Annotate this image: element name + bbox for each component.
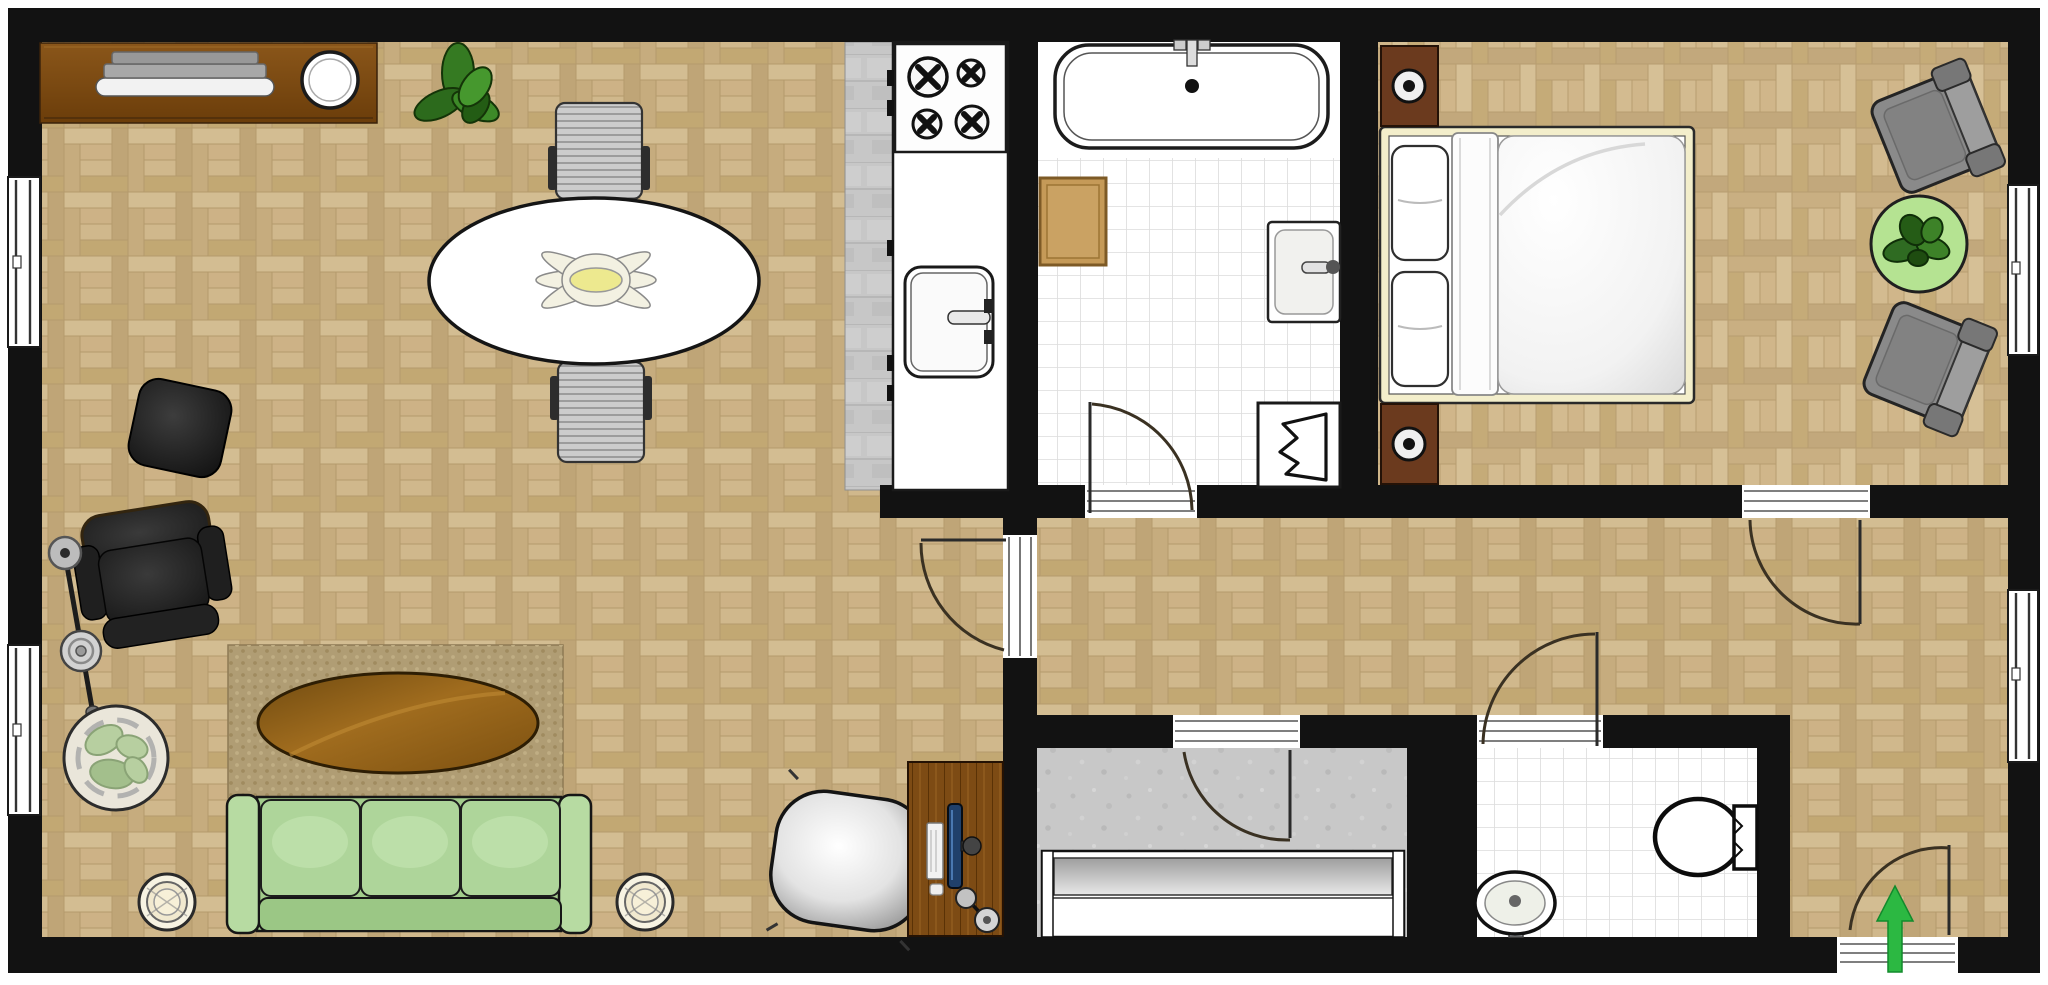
serving-tray <box>96 52 274 96</box>
kitchen <box>887 42 1008 490</box>
hallway-floor <box>1037 518 2008 715</box>
computer-desk <box>908 762 1003 936</box>
dining-chair-bottom <box>550 362 652 462</box>
laundry-basket <box>1258 403 1340 487</box>
bathroom-washbasin <box>1268 222 1340 322</box>
kitchen-sink <box>905 267 994 377</box>
double-bed <box>1380 127 1694 403</box>
round-plant-table <box>1871 196 1967 292</box>
window-right-bedroom <box>2008 185 2038 355</box>
nightstand-bottom <box>1381 404 1438 484</box>
decorative-bowl <box>302 52 358 108</box>
toilet <box>1655 799 1757 875</box>
window-right-hallway <box>2008 590 2038 762</box>
bath-mat <box>1040 178 1106 265</box>
window-left-upper <box>8 177 40 347</box>
table-centerpiece <box>536 244 656 316</box>
kitchen-strip-floor <box>845 42 893 490</box>
duvet <box>1498 136 1685 394</box>
oval-coffee-table <box>258 673 538 773</box>
nightstand-top <box>1381 46 1438 126</box>
round-side-table-left <box>139 874 195 930</box>
three-seat-sofa <box>227 795 591 933</box>
wardrobe <box>1042 851 1404 937</box>
round-side-table-right <box>617 874 673 930</box>
cooktop <box>895 44 1006 152</box>
small-washbasin <box>1475 872 1555 937</box>
bathtub <box>1055 40 1328 148</box>
keyboard <box>927 823 943 879</box>
sideboard <box>40 43 377 123</box>
folded-sheet <box>1452 133 1498 395</box>
pouf <box>125 375 235 481</box>
large-potted-plant <box>64 706 168 810</box>
dining-chair-top <box>548 103 650 199</box>
floor-plan <box>0 0 2048 985</box>
mouse <box>930 884 943 895</box>
window-left-lower <box>8 645 40 815</box>
